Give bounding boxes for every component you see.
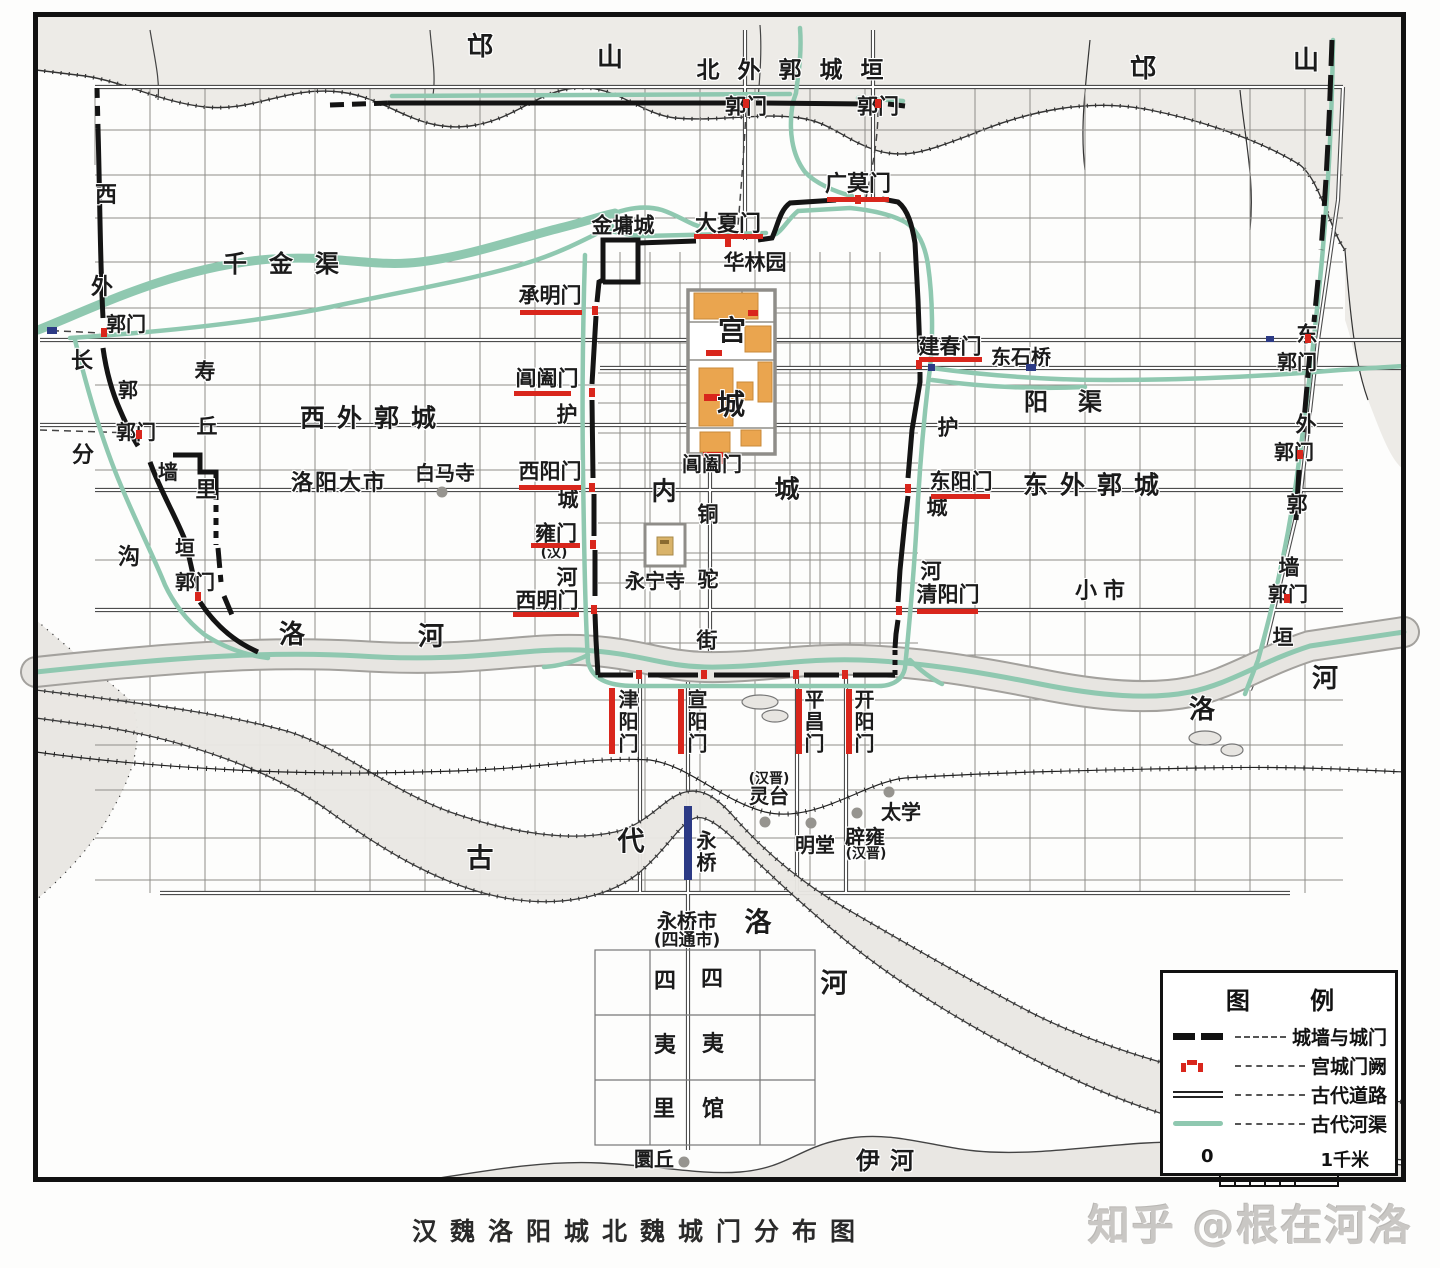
siyi-ward-grid bbox=[595, 950, 815, 1145]
river-icon bbox=[1173, 1121, 1223, 1126]
map-title: 汉魏洛阳城北魏城门分布图 bbox=[290, 1212, 990, 1248]
map-page: 邙山北外郭城垣郭门郭门邙山广莫门金墉城大夏门华林园千金渠承明门西外郭门长郭郭门寿… bbox=[0, 0, 1440, 1268]
palace-gate-icon bbox=[1181, 1060, 1203, 1072]
watermark: 知乎 @根在河洛 bbox=[1088, 1192, 1413, 1253]
legend-label: 古代河渠 bbox=[1311, 1110, 1387, 1137]
legend-item-river: 古代河渠 bbox=[1173, 1109, 1387, 1138]
legend-label: 古代道路 bbox=[1311, 1081, 1387, 1108]
yongning-temple bbox=[645, 524, 685, 566]
wall-icon bbox=[1173, 1033, 1223, 1040]
legend-label: 宫城门阙 bbox=[1311, 1052, 1387, 1079]
legend-item-wall: 城墙与城门 bbox=[1173, 1022, 1387, 1051]
legend-item-palace-gate: 宫城门阙 bbox=[1173, 1051, 1387, 1080]
scale-end: 1千米 bbox=[1320, 1146, 1369, 1172]
legend-item-road: 古代道路 bbox=[1173, 1080, 1387, 1109]
legend-label: 城墙与城门 bbox=[1292, 1023, 1387, 1050]
map-legend: 图 例 城墙与城门 宫城门阙 古代道路 古代河渠 0 1千米 bbox=[1160, 970, 1398, 1176]
road-icon bbox=[1173, 1091, 1223, 1098]
legend-title: 图 例 bbox=[1173, 981, 1387, 1016]
scale-labels: 0 1千米 bbox=[1201, 1146, 1369, 1172]
scale-start: 0 bbox=[1201, 1146, 1214, 1172]
scale-bar bbox=[1219, 1172, 1357, 1191]
